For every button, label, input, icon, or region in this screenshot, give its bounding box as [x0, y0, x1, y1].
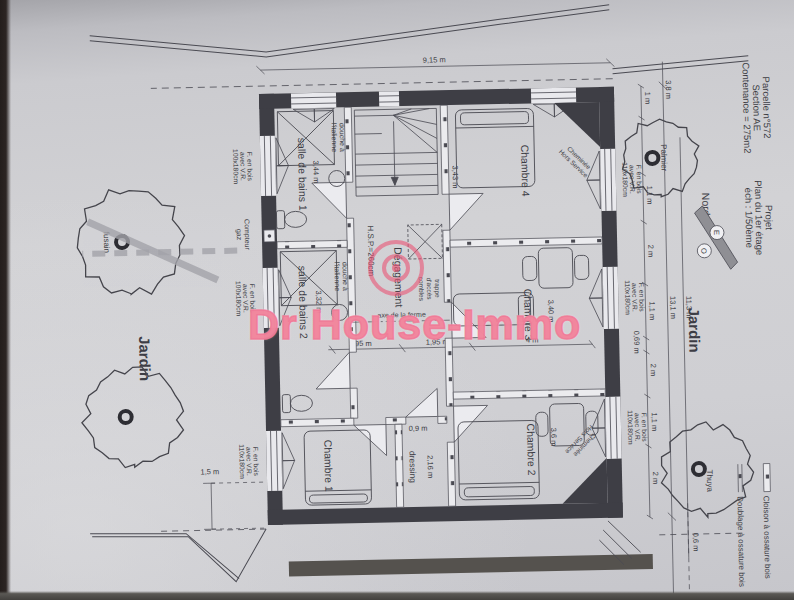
- gas-meter-line1: Compteur: [243, 219, 252, 251]
- photo-edge-bottom: [0, 591, 794, 600]
- dim-06: 0,6 m: [691, 533, 700, 552]
- legend-cloison-symbol: [763, 464, 770, 492]
- parcel-area: Contenance = 275m2: [740, 62, 753, 153]
- compass-west-label: O: [699, 248, 708, 254]
- door-ch2: [454, 405, 489, 442]
- compass-east-label: E: [712, 230, 721, 235]
- floorplan-drawing: Parcelle n°572 Section AE Contenance = 2…: [0, 0, 794, 600]
- dim-113: 11,3 m: [684, 296, 693, 319]
- window-label-sdb1: F. en bois avec V.R. 100x180cm: [232, 149, 254, 185]
- svg-text:110x180cm: 110x180cm: [621, 162, 629, 197]
- svg-text:avec V.R.: avec V.R.: [245, 447, 253, 476]
- svg-text:F. en bois: F. en bois: [636, 165, 644, 195]
- fireplace-ch4: [554, 102, 600, 148]
- window-label-ch2: F. en bois avec V.R. 110x180cm: [627, 410, 649, 445]
- svg-text:avec V.R.: avec V.R.: [239, 152, 247, 181]
- dim-38: 3,8 m: [664, 80, 673, 99]
- dim-069: 0,69 m: [632, 331, 641, 354]
- svg-text:F. en bois: F. en bois: [249, 284, 257, 314]
- dim-ch3: 3,40 m: [546, 299, 555, 322]
- garden-label-bottom: Jardin: [136, 336, 154, 381]
- dim-2c: 2 m: [651, 472, 660, 485]
- window-label-ch3: F. en bois avec V.R. 110x180cm: [624, 280, 646, 315]
- svg-text:F. en bois: F. en bois: [641, 413, 649, 443]
- truss-axis-line: [352, 320, 450, 322]
- window-label-ch1: F. en bois avec V.R. 110x180cm: [238, 444, 260, 479]
- douche2-line1: douche à: [341, 262, 349, 291]
- window-left-sdb1: [291, 93, 337, 123]
- svg-text:100x180cm: 100x180cm: [235, 281, 243, 317]
- room-label-degagement: Dégagement: [392, 247, 405, 307]
- dim-total-width: 13,1 m: [668, 296, 677, 319]
- rotated-plan-sheet: Parcelle n°572 Section AE Contenance = 2…: [0, 0, 794, 600]
- bed-ch1: [304, 430, 372, 505]
- truss-axis-label: axe de la ferme: [377, 311, 425, 319]
- legend: Cloison à ossature bois Doublage à ossat…: [735, 464, 773, 587]
- svg-text:avec V.R.: avec V.R.: [631, 283, 639, 312]
- project-label: Projet: [763, 205, 775, 230]
- dim-11c: 1,1 m: [650, 412, 659, 431]
- trappe-line1: trappe: [433, 279, 441, 298]
- dim-2b: 2 m: [649, 364, 658, 377]
- svg-text:F. en bois: F. en bois: [252, 447, 260, 477]
- room-label-sdb1: salle de bains 1: [296, 138, 310, 211]
- boundary-wall: [288, 520, 653, 577]
- dim-11b: 1,1 m: [647, 301, 656, 320]
- dim-total-depth: 9,15 m: [423, 55, 446, 64]
- door-sdb2: [315, 352, 350, 389]
- dim-sdb1: 3,44 m: [311, 160, 320, 183]
- dim-setback: 1,5 m: [200, 467, 219, 476]
- title-block: Parcelle n°572 Section AE Contenance = 2…: [740, 62, 775, 256]
- window-ch4: [586, 149, 616, 212]
- room-label-chambre3: Chambre 3: [522, 288, 535, 340]
- trappe-line2: d'accès: [426, 278, 433, 301]
- legend-cloison-label: Cloison à ossature bois: [761, 495, 772, 578]
- room-label-chambre1: Chambre 1: [322, 440, 335, 492]
- table-ch3: [522, 247, 589, 288]
- svg-text:avec V.R.: avec V.R.: [634, 413, 642, 442]
- window-label-ch4: F. en bois avec V.R. 110x180cm: [621, 162, 643, 197]
- legend-doublage-label: Doublage à ossature bois: [735, 496, 746, 587]
- window-sdb2: [263, 267, 292, 328]
- douche1-line1: douche à: [339, 123, 347, 152]
- door-ch4: [449, 193, 484, 230]
- window-ch1: [266, 430, 295, 491]
- window-label-sdb2: F. en bois avec V.R. 100x180cm: [235, 281, 257, 317]
- tree-thuya-label: Thuya: [705, 470, 714, 493]
- dim-1m: 1 m: [643, 92, 652, 105]
- douche1-line2: l'italienne: [331, 123, 339, 152]
- tree-palmier-trunk-icon: [646, 152, 658, 164]
- staircase: [354, 108, 438, 196]
- dim-2a: 2 m: [646, 245, 655, 258]
- room-label-chambre4: Chambre 4: [519, 144, 532, 196]
- window-left-stairs: [379, 91, 399, 106]
- legend-doublage-symbol: [738, 464, 743, 492]
- attic-hatch: [408, 224, 443, 259]
- tree-thuya-trunk-icon: [693, 463, 705, 475]
- room-label-sdb2: salle de bains 2: [297, 266, 311, 339]
- toilet-sdb1: [276, 210, 306, 229]
- tree-unnamed-trunk-icon: [120, 411, 132, 423]
- dim-dressing-width: 0,9 m: [409, 424, 428, 433]
- project-scale: éch : 1/50ème: [743, 188, 755, 248]
- sink-sdb2: [331, 304, 347, 320]
- svg-text:110x180cm: 110x180cm: [624, 280, 632, 315]
- dim-11a: 1,1 m: [645, 185, 654, 204]
- toilet-sdb2: [282, 394, 312, 413]
- door-sdb1: [312, 182, 347, 219]
- floorplan-photo: Parcelle n°572 Section AE Contenance = 2…: [0, 0, 794, 600]
- svg-text:avec V.R.: avec V.R.: [242, 284, 250, 313]
- gas-meter-line2: gaz: [235, 229, 243, 241]
- dim-ch4: 3,43 m: [450, 165, 459, 188]
- svg-text:F. en bois: F. en bois: [246, 152, 254, 182]
- door-ch3: [451, 301, 486, 338]
- door-dressing: [405, 388, 438, 417]
- room-label-chambre2: Chambre 2: [525, 423, 538, 475]
- north-compass: Nord E O: [694, 192, 738, 270]
- dim-dressing-length: 2,16 m: [426, 455, 435, 478]
- fireplace-ch2: [562, 458, 608, 504]
- photo-edge-left: [0, 0, 11, 600]
- room-label-dressing: dressing: [407, 451, 418, 484]
- fireplace-ch2-label: Cheminée Hors Service: [564, 424, 601, 462]
- trappe-line3: combles: [418, 277, 426, 302]
- svg-text:110x180cm: 110x180cm: [627, 410, 635, 445]
- fireplace-ch4-label: Cheminée Hors Service: [558, 142, 596, 179]
- window-ch2: [591, 397, 621, 460]
- svg-text:110x180cm: 110x180cm: [238, 444, 246, 479]
- window-ch3: [589, 267, 619, 330]
- ceiling-height-label: H.S.P.=260cm: [366, 225, 376, 276]
- dim-sdb2: 3,32 m: [314, 290, 323, 313]
- svg-text:100x180cm: 100x180cm: [232, 149, 240, 185]
- svg-text:F. en bois: F. en bois: [638, 283, 646, 313]
- svg-text:avec V.R.: avec V.R.: [629, 165, 637, 194]
- douche2-line2: l'italienne: [333, 262, 341, 291]
